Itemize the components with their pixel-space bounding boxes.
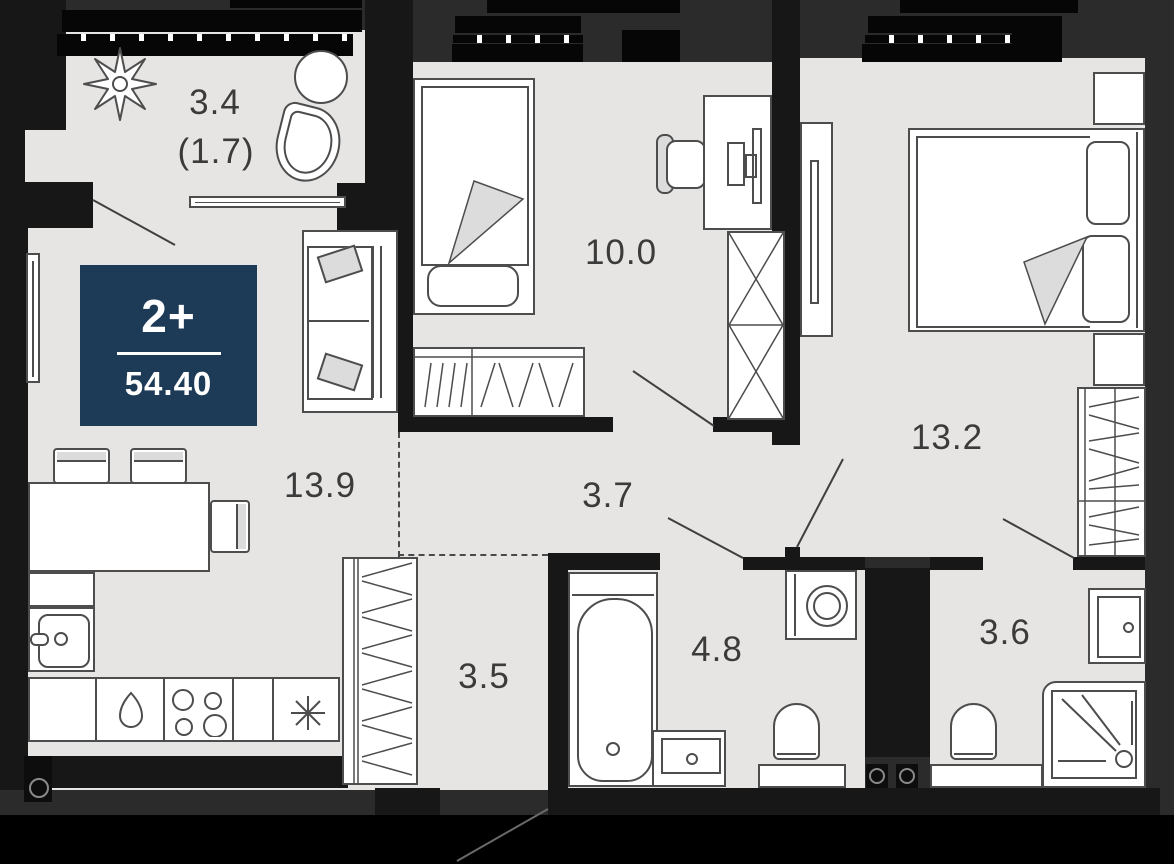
wardrobe-x-pattern: [729, 233, 783, 418]
headboard-line: [1136, 132, 1138, 328]
nightstand: [1093, 333, 1145, 386]
single-bed: [413, 78, 535, 315]
keyboard-icon: [727, 142, 745, 186]
toilet-base: [758, 764, 846, 788]
wall: [0, 182, 93, 228]
floor-shower-doorway: [983, 557, 1073, 570]
wall: [930, 557, 983, 570]
balcony-table: [294, 50, 348, 104]
kitchen-counter: [28, 572, 95, 607]
double-bed: [908, 128, 1145, 332]
vent-icon: [866, 764, 888, 788]
kitchen-counter-row: [28, 677, 340, 742]
dining-table: [28, 482, 210, 572]
wall: [0, 130, 25, 182]
label-bathroom-area: 4.8: [691, 630, 743, 670]
vent-box-icon: [24, 756, 52, 802]
faucet-icon: [30, 633, 49, 646]
dining-chair: [130, 448, 187, 484]
bed-pillow: [1082, 235, 1130, 323]
badge-divider: [117, 352, 221, 355]
bathtub: [568, 572, 658, 787]
room-count: 2+: [141, 289, 195, 343]
bed-pillow: [1086, 141, 1130, 225]
master-window-icon: [1012, 16, 1062, 62]
plant-icon: [82, 44, 160, 124]
wall: [548, 553, 660, 570]
master-window-icon: [900, 0, 1078, 13]
label-bedroom-area: 10.0: [585, 233, 657, 273]
wall: [398, 417, 613, 432]
floor-bedroom-doorway: [613, 417, 713, 432]
washing-machine: [785, 570, 857, 640]
toilet-base: [930, 764, 1043, 788]
zone-divider-dashed: [398, 432, 400, 557]
floor-plan: 2+ 54.40: [0, 0, 1174, 864]
water-drop-icon: [114, 689, 148, 733]
apartment-badge: 2+ 54.40: [80, 265, 257, 426]
drain-icon: [606, 742, 620, 756]
ventilation-shaft: [865, 568, 930, 757]
wall: [548, 570, 568, 815]
bedroom-window-icon: [452, 44, 583, 62]
kitchen-sink: [28, 607, 95, 672]
label-shower-room-area: 3.6: [979, 613, 1031, 653]
monitor-stand: [745, 154, 757, 178]
hob-burners-icon: [168, 685, 234, 737]
balcony-window-icon: [62, 10, 362, 32]
label-hallway-area: 3.7: [582, 476, 634, 516]
wall: [548, 788, 1160, 815]
dresser-hatch: [415, 349, 583, 415]
shower-spray-icon: [1044, 683, 1144, 786]
living-window-icon: [26, 253, 40, 383]
label-corridor-area: 3.5: [458, 657, 510, 697]
toilet: [773, 703, 820, 760]
hall-wardrobe-hatch: [344, 559, 416, 783]
wardrobe-hatched: [1077, 387, 1146, 557]
wall: [398, 218, 413, 432]
wardrobe-hatch: [1079, 389, 1144, 555]
wall: [743, 557, 865, 570]
label-balcony-area: 3.4: [189, 83, 241, 123]
zone-divider-dashed: [398, 554, 548, 556]
tall-cabinet: [800, 122, 833, 337]
sofa: [302, 230, 398, 413]
wall-exterior-left: [0, 228, 28, 790]
master-window-icon: [862, 44, 1014, 62]
toilet: [950, 703, 997, 760]
extractor-asterisk-icon: [290, 695, 326, 731]
wall-exterior-bottom: [26, 756, 348, 788]
knob-icon: [1123, 622, 1134, 633]
vent-icon: [896, 764, 918, 788]
drain-icon: [54, 632, 68, 646]
bathroom-sink: [652, 730, 726, 787]
master-window-icon: [868, 16, 1012, 33]
bedroom-window-icon: [455, 16, 581, 33]
dining-chair: [210, 500, 250, 553]
balcony-window-mullions-icon: [57, 34, 353, 41]
wall: [0, 0, 66, 130]
floor-master-doorway: [785, 445, 800, 557]
wall-cabinet: [1088, 588, 1146, 664]
wall: [375, 788, 440, 815]
desk: [703, 95, 772, 230]
dresser: [413, 347, 585, 417]
balcony-window-icon: [230, 0, 362, 8]
bedroom-window-mullions-icon: [453, 35, 583, 43]
bottom-band: [0, 815, 1174, 864]
wall: [1073, 557, 1145, 570]
floor-bathroom-doorway: [660, 553, 743, 570]
dining-chair: [53, 448, 110, 484]
desk-chair: [666, 140, 706, 189]
window-sill: [189, 196, 346, 208]
label-balcony-included: (1.7): [178, 132, 255, 172]
wardrobe: [727, 231, 785, 420]
total-area: 54.40: [125, 365, 213, 403]
shower-tray: [1042, 681, 1146, 788]
hall-wardrobe: [342, 557, 418, 785]
bedroom-window-icon: [487, 0, 680, 13]
bed-pillow: [427, 265, 519, 307]
label-kitchen-living-area: 13.9: [284, 466, 356, 506]
nightstand: [1093, 72, 1145, 125]
master-window-mullions-icon: [865, 35, 1013, 43]
bedroom-window-icon: [622, 30, 680, 62]
label-master-bedroom-area: 13.2: [911, 418, 983, 458]
